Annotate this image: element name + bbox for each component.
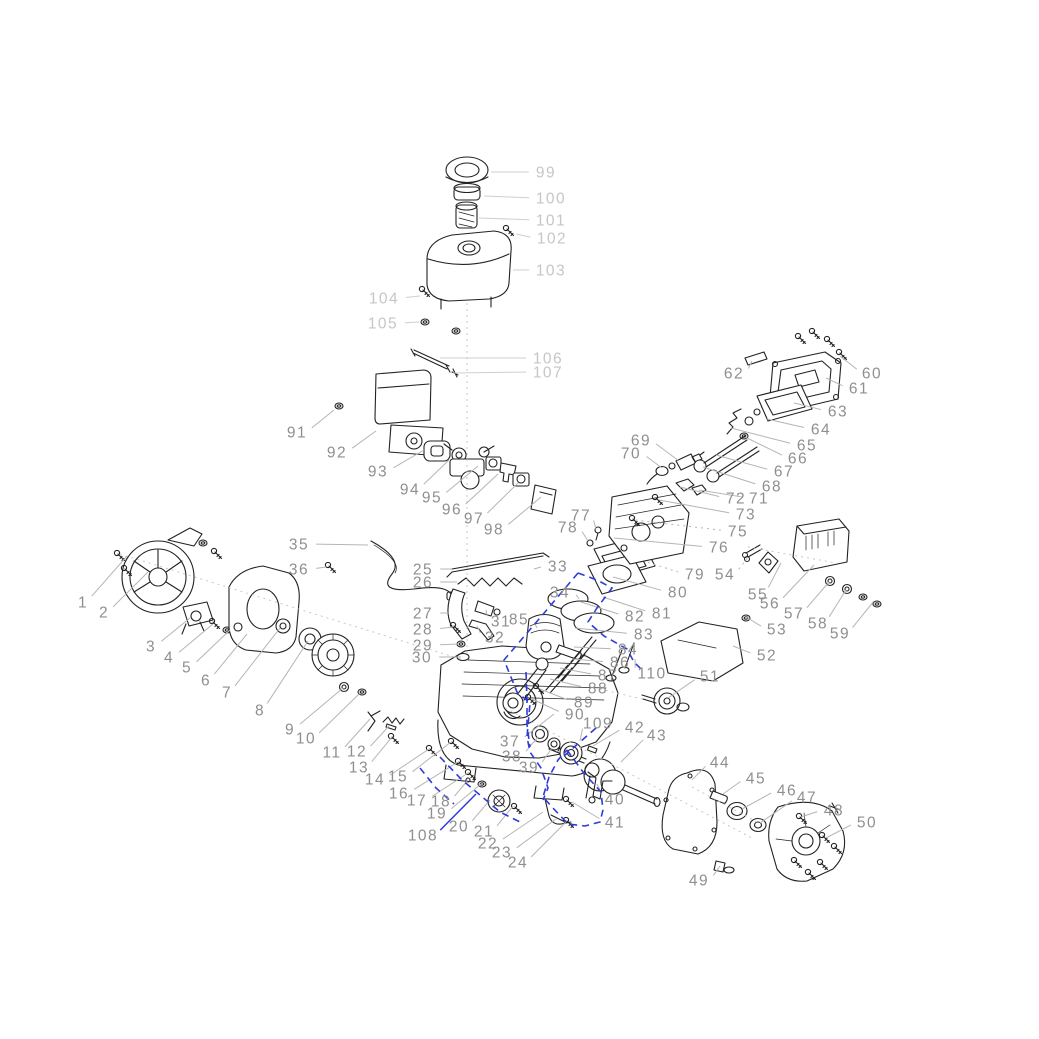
- leader-line-91: [312, 410, 334, 428]
- part-number-51: 51: [700, 669, 720, 686]
- leader-line-77: [594, 520, 596, 529]
- part-number-3: 3: [146, 639, 156, 656]
- leader-line-69: [656, 444, 679, 461]
- part-number-54: 54: [715, 567, 735, 584]
- part-number-73: 73: [736, 507, 756, 524]
- leader-line-12: [371, 726, 389, 746]
- part-number-108: 108: [408, 828, 438, 845]
- part-number-64: 64: [811, 422, 831, 439]
- leader-line-56: [783, 565, 814, 598]
- part-number-82: 82: [625, 609, 645, 626]
- part-number-11: 11: [322, 745, 341, 762]
- part-number-8: 8: [255, 703, 265, 720]
- leader-line-84: [574, 647, 611, 649]
- leader-line-58: [829, 590, 846, 617]
- leader-line-16: [414, 762, 458, 789]
- part-number-52: 52: [757, 648, 777, 665]
- leader-line-94: [424, 460, 449, 484]
- part-number-17: 17: [407, 793, 427, 810]
- part-number-35: 35: [289, 537, 309, 554]
- part-number-81: 81: [652, 606, 672, 623]
- part-number-15: 15: [388, 769, 408, 786]
- part-number-92: 92: [327, 445, 347, 462]
- part-number-56: 56: [760, 596, 780, 613]
- leader-line-43: [621, 740, 643, 762]
- leader-line-36: [316, 567, 326, 568]
- part-number-28: 28: [413, 622, 433, 639]
- leader-line-57: [807, 582, 829, 608]
- part-number-91: 91: [287, 425, 307, 442]
- part-number-95: 95: [422, 490, 442, 507]
- part-number-24: 24: [508, 855, 528, 872]
- part-number-40: 40: [605, 792, 625, 809]
- leader-line-23: [517, 819, 556, 848]
- leader-line-60: [840, 356, 857, 369]
- part-number-109: 109: [583, 716, 613, 733]
- part-number-45: 45: [746, 771, 766, 788]
- leader-line-59: [853, 601, 874, 628]
- leader-line-107: [453, 372, 526, 373]
- leader-line-20: [472, 800, 490, 821]
- part-number-100: 100: [536, 191, 566, 208]
- part-number-93: 93: [368, 464, 388, 481]
- part-number-70: 70: [621, 446, 641, 463]
- part-number-39: 39: [519, 760, 539, 777]
- part-number-107: 107: [533, 365, 563, 382]
- leader-line-46: [742, 793, 771, 809]
- part-number-19: 19: [427, 806, 447, 823]
- leader-line-45: [723, 781, 741, 794]
- part-number-76: 76: [709, 540, 729, 557]
- part-number-94: 94: [400, 482, 420, 499]
- leader-line-64: [767, 419, 804, 428]
- part-number-10: 10: [296, 731, 316, 748]
- part-number-47: 47: [797, 790, 817, 807]
- part-number-48: 48: [824, 803, 844, 820]
- part-number-103: 103: [536, 263, 566, 280]
- leader-line-97: [487, 483, 518, 513]
- leader-line-105: [405, 322, 419, 323]
- exploded-diagram-canvas: 1234567891011121314151617181920212223242…: [0, 0, 1039, 1039]
- part-number-1: 1: [78, 595, 88, 612]
- part-number-101: 101: [536, 213, 566, 230]
- leader-line-53: [746, 617, 761, 626]
- leader-line-70: [646, 456, 662, 468]
- part-number-98: 98: [484, 522, 504, 539]
- part-number-5: 5: [182, 660, 192, 677]
- part-number-97: 97: [464, 511, 484, 528]
- leader-line-35: [316, 544, 368, 545]
- part-number-105: 105: [368, 316, 398, 333]
- part-number-75: 75: [728, 524, 748, 541]
- part-number-80: 80: [668, 585, 688, 602]
- leader-line-22: [503, 812, 543, 839]
- part-number-26: 26: [413, 575, 433, 592]
- part-number-59: 59: [830, 626, 850, 643]
- part-number-33: 33: [548, 559, 568, 576]
- leader-line-78: [582, 532, 588, 541]
- part-number-9: 9: [285, 722, 295, 739]
- part-number-14: 14: [365, 772, 385, 789]
- part-number-41: 41: [605, 815, 625, 832]
- exploded-parts-diagram: 1234567891011121314151617181920212223242…: [0, 0, 1039, 1039]
- part-number-44: 44: [710, 755, 730, 772]
- part-number-36: 36: [289, 562, 309, 579]
- part-number-102: 102: [537, 231, 567, 248]
- leader-line-24: [531, 822, 566, 857]
- part-number-4: 4: [164, 650, 174, 667]
- part-number-104: 104: [369, 291, 399, 308]
- leader-line-28: [440, 627, 453, 628]
- leader-line-54: [739, 556, 749, 569]
- leader-line-102: [516, 234, 530, 237]
- part-number-61: 61: [849, 381, 869, 398]
- part-number-110: 110: [637, 666, 666, 683]
- leader-line-101: [479, 218, 529, 220]
- part-number-96: 96: [442, 502, 462, 519]
- leader-line-104: [406, 296, 420, 298]
- part-number-57: 57: [784, 606, 804, 623]
- leader-line-100: [484, 196, 529, 198]
- part-number-42: 42: [625, 720, 645, 737]
- part-number-78: 78: [558, 520, 578, 537]
- part-number-2: 2: [99, 605, 109, 622]
- part-number-34: 34: [550, 585, 570, 602]
- leader-line-41: [572, 802, 599, 819]
- part-number-99: 99: [536, 165, 556, 182]
- part-number-46: 46: [777, 783, 797, 800]
- leader-line-13: [372, 737, 392, 762]
- part-number-27: 27: [413, 606, 433, 623]
- part-number-62: 62: [724, 366, 744, 383]
- leader-line-9: [300, 688, 343, 724]
- part-number-49: 49: [689, 873, 709, 890]
- part-number-30: 30: [412, 650, 432, 667]
- leader-line-29: [440, 644, 459, 645]
- part-number-72: 72: [726, 491, 746, 508]
- part-number-43: 43: [647, 728, 667, 745]
- part-number-85: 85: [509, 612, 529, 629]
- part-number-79: 79: [685, 567, 705, 584]
- part-number-63: 63: [828, 404, 848, 421]
- part-number-58: 58: [808, 616, 828, 633]
- part-number-6: 6: [201, 673, 211, 690]
- leader-line-92: [352, 431, 376, 448]
- part-number-20: 20: [449, 819, 469, 836]
- part-number-32: 32: [485, 630, 505, 647]
- part-number-12: 12: [347, 744, 367, 761]
- leader-line-3: [161, 618, 190, 641]
- part-number-53: 53: [767, 622, 787, 639]
- leader-line-33: [534, 567, 541, 569]
- leader-line-5: [197, 630, 230, 662]
- part-number-50: 50: [857, 815, 877, 832]
- part-number-71: 71: [749, 491, 769, 508]
- part-number-7: 7: [222, 685, 232, 702]
- leader-line-10: [319, 693, 360, 733]
